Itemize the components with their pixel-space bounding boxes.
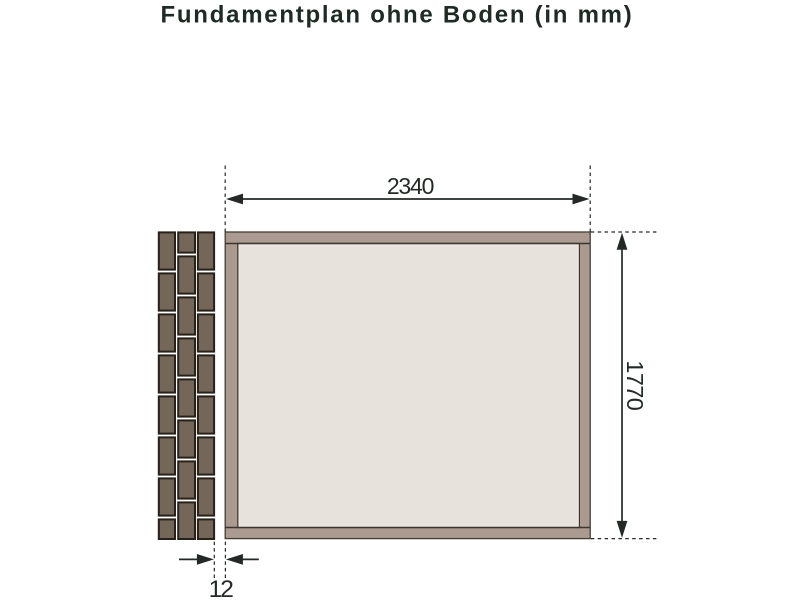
- svg-text:1770: 1770: [622, 360, 648, 410]
- svg-text:12: 12: [209, 576, 234, 600]
- svg-text:2340: 2340: [387, 173, 434, 199]
- svg-text:Fundamentplan ohne Boden (in m: Fundamentplan ohne Boden (in mm): [161, 2, 634, 29]
